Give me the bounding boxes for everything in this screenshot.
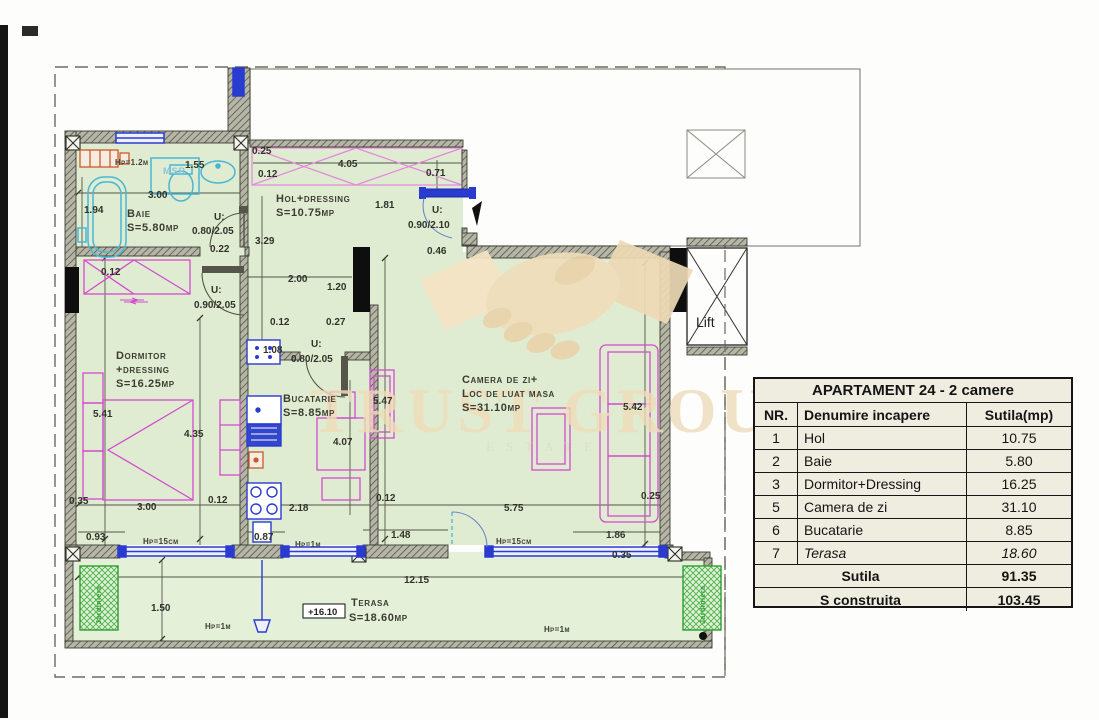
table-row: 6Bucatarie8.85: [755, 519, 1071, 542]
floor-plan-drawing: TRUST GROUP ESTATE BaieS=5.80mpHol+dress…: [0, 0, 1099, 720]
room-label: S=10.75mp: [276, 207, 335, 219]
dimension-label: 3.00: [137, 502, 157, 513]
table-area-cell: 10.75: [967, 427, 1071, 450]
table-footer-label: S construita: [755, 588, 967, 611]
jardiniera-label: Jardiniera: [96, 586, 103, 624]
dimension-label: 2.18: [289, 503, 309, 514]
scan-artifacts: [0, 25, 38, 718]
dimension-label: 1.20: [327, 282, 347, 293]
dimension-label: U:: [432, 205, 443, 216]
dimension-label: 4.07: [333, 437, 353, 448]
room-label: Terasa: [351, 597, 389, 609]
room-label: S=5.80mp: [127, 222, 179, 234]
bath-radiator-icon: [80, 150, 118, 167]
lift-label: Lift: [696, 314, 715, 330]
room-label: +dressing: [116, 364, 170, 376]
room-label: S=18.60mp: [349, 612, 408, 624]
table-header-cell: Sutila(mp): [967, 403, 1071, 427]
room-label: S=31.10mp: [462, 402, 521, 414]
table-area-cell: 31.10: [967, 496, 1071, 519]
dimension-label: 0.12: [101, 267, 121, 278]
watermark-subtext: ESTATE: [486, 439, 604, 454]
dimension-label: 1.94: [84, 205, 104, 216]
table-footer-row: Sutila91.35: [755, 565, 1071, 588]
dimension-label: 0.35: [69, 496, 89, 507]
dimension-label: 0.25: [252, 146, 272, 157]
dimension-label: 0.90/2.05: [194, 300, 236, 311]
dimension-label: 0.27: [326, 317, 346, 328]
dimension-label: 4.05: [338, 159, 358, 170]
table-row: 3Dormitor+Dressing16.25: [755, 473, 1071, 496]
dimension-label: 0.93: [86, 532, 106, 543]
dimension-label: 0.90/2.10: [408, 220, 450, 231]
dimension-label: 1.48: [391, 530, 411, 541]
table-header-row: NR.Denumire incapereSutila(mp): [755, 403, 1071, 427]
table-header-cell: Denumire incapere: [797, 403, 967, 427]
dimension-label: 5.41: [93, 409, 113, 420]
dimension-label: 1.50: [151, 603, 171, 614]
parapet-height-label: Hp=1m: [295, 540, 321, 549]
dimension-label: 5.47: [373, 396, 393, 407]
fridge-icon: [247, 396, 281, 424]
room-label: Bucatarie: [283, 393, 337, 405]
table-header-cell: NR.: [755, 403, 797, 427]
table-room-cell: Terasa: [797, 542, 967, 565]
dimension-label: 3.00: [148, 190, 168, 201]
dimension-label: 5.75: [504, 503, 524, 514]
room-label: Hol+dressing: [276, 193, 350, 205]
table-nr-cell: 3: [755, 473, 797, 496]
parapet-height-label: Hp=1.2m: [115, 158, 148, 167]
sink-unit-icon: [247, 424, 281, 446]
table-title: APARTAMENT 24 - 2 camere: [755, 379, 1071, 403]
parapet-height-label: Hp=15cm: [143, 537, 178, 546]
room-label: S=8.85mp: [283, 407, 335, 419]
table-nr-cell: 2: [755, 450, 797, 473]
table-nr-cell: 5: [755, 496, 797, 519]
watermark-text: TRUST GROUP: [310, 375, 813, 446]
parapet-height-label: Hp=1m: [205, 622, 231, 631]
dimension-label: 12.15: [404, 575, 429, 586]
dimension-label: 0.87: [254, 532, 274, 543]
room-label: Loc de luat masa: [462, 388, 555, 400]
dimension-label: 1.55: [185, 160, 205, 171]
dimension-label: U:: [214, 212, 225, 223]
table-room-cell: Baie: [797, 450, 967, 473]
dimension-label: U:: [311, 339, 322, 350]
table-nr-cell: 6: [755, 519, 797, 542]
dimension-label: 0.80/2.05: [192, 226, 234, 237]
table-room-cell: Camera de zi: [797, 496, 967, 519]
dimension-label: 1.86: [606, 530, 626, 541]
room-label: S=16.25mp: [116, 378, 175, 390]
table-row: 2Baie5.80: [755, 450, 1071, 473]
table-row: 5Camera de zi31.10: [755, 496, 1071, 519]
dimension-label: 0.46: [427, 246, 447, 257]
table-room-cell: Bucatarie: [797, 519, 967, 542]
dimension-label: 0.25: [641, 491, 661, 502]
washing-machine-label: MSR: [163, 166, 186, 176]
table-footer-value: 91.35: [967, 565, 1071, 588]
dimension-label: 0.12: [376, 493, 396, 504]
dimension-label: 0.22: [210, 244, 230, 255]
dimension-label: 0.80/2.05: [291, 354, 333, 365]
table-area-cell: 18.60: [967, 542, 1071, 565]
dimension-label: 1.08: [263, 345, 283, 356]
scanned-floor-plan-page: TRUST GROUP ESTATE BaieS=5.80mpHol+dress…: [0, 0, 1099, 720]
parapet-height-label: Hp=15cm: [496, 537, 531, 546]
dimension-label: 0.12: [270, 317, 290, 328]
room-label: Dormitor: [116, 350, 166, 362]
dimension-label: 3.29: [255, 236, 275, 247]
table-row: 1Hol10.75: [755, 427, 1071, 450]
dimension-label: 0.12: [258, 169, 278, 180]
table-room-cell: Hol: [797, 427, 967, 450]
table-area-cell: 8.85: [967, 519, 1071, 542]
parapet-height-label: Hp=1m: [544, 625, 570, 634]
table-nr-cell: 1: [755, 427, 797, 450]
table-area-cell: 5.80: [967, 450, 1071, 473]
room-label: Camera de zi+: [462, 374, 538, 386]
table-nr-cell: 7: [755, 542, 797, 565]
table-area-cell: 16.25: [967, 473, 1071, 496]
dimension-label: 0.71: [426, 168, 446, 179]
dimension-label: U:: [211, 285, 222, 296]
table-footer-label: Sutila: [755, 565, 967, 588]
area-table: APARTAMENT 24 - 2 camere NR.Denumire inc…: [753, 377, 1073, 608]
dimension-label: 1.81: [375, 200, 395, 211]
room-label: Baie: [127, 208, 151, 220]
dimension-label: 2.00: [288, 274, 308, 285]
table-footer-row: S construita103.45: [755, 588, 1071, 611]
table-row: 7Terasa18.60: [755, 542, 1071, 565]
table-room-cell: Dormitor+Dressing: [797, 473, 967, 496]
dimension-label: 0.12: [208, 495, 228, 506]
dimension-label: 0.35: [612, 550, 632, 561]
dimension-label: 4.35: [184, 429, 204, 440]
dimension-label: 5.42: [623, 402, 643, 413]
table-footer-value: 103.45: [967, 588, 1071, 611]
elevation-label: +16.10: [308, 607, 337, 618]
jardiniera-label: Jardiniera: [700, 586, 707, 624]
